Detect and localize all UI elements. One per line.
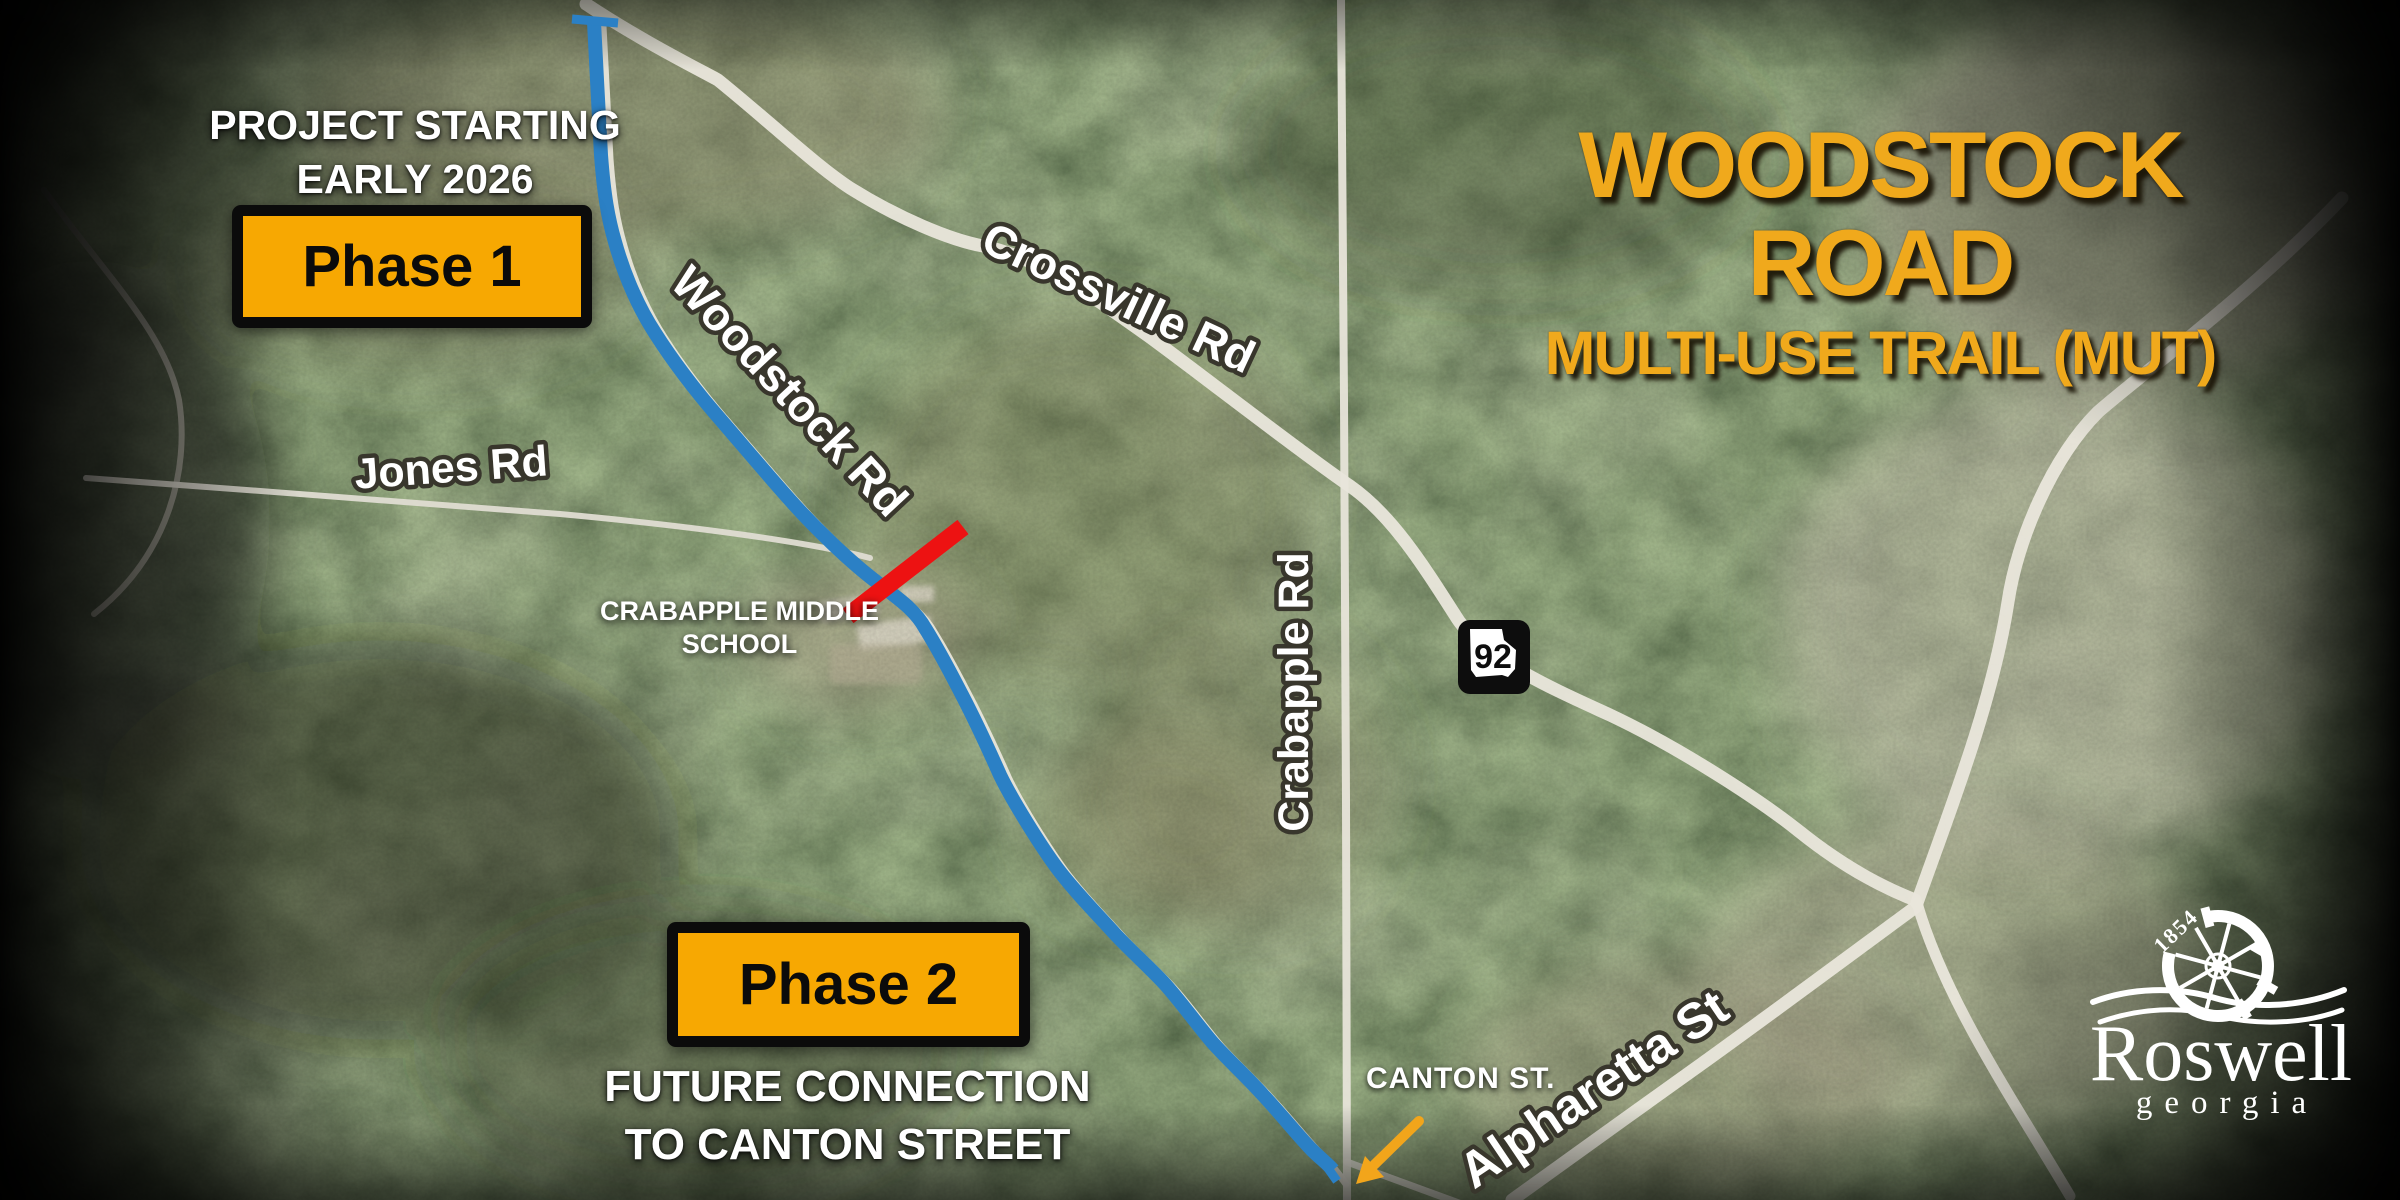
future-connection-note: FUTURE CONNECTION TO CANTON STREET: [575, 1058, 1120, 1174]
canton-street-label: CANTON ST.: [1366, 1062, 1626, 1096]
phase-2-label: Phase 2: [739, 951, 958, 1018]
future-connection-line-2: TO CANTON STREET: [575, 1116, 1120, 1174]
school-label: CRABAPPLE MIDDLE SCHOOL: [597, 595, 882, 661]
phase-2-badge: Phase 2: [667, 922, 1030, 1047]
title-line-2: MULTI-USE TRAIL (MUT): [1495, 320, 2265, 386]
page-title: WOODSTOCK ROAD MULTI-USE TRAIL (MUT): [1495, 116, 2265, 386]
map-canvas: 92 Crossville Rd Woodstock Rd Jones Rd C…: [0, 0, 2400, 1200]
project-start-line-1: PROJECT STARTING: [200, 98, 630, 152]
phase-1-label: Phase 1: [302, 233, 521, 300]
project-start-line-2: EARLY 2026: [200, 152, 630, 206]
highway-92-shield: 92: [1458, 620, 1530, 694]
road-label-crabapple: Crabapple Rd: [1270, 552, 1318, 832]
highway-route-number: 92: [1474, 638, 1512, 676]
school-label-line-1: CRABAPPLE MIDDLE: [597, 595, 882, 628]
trail-start-cap: [572, 19, 618, 23]
project-start-note: PROJECT STARTING EARLY 2026: [200, 98, 630, 206]
logo-state: georgia: [2136, 1085, 2318, 1121]
title-line-1: WOODSTOCK ROAD: [1495, 116, 2265, 312]
phase-1-badge: Phase 1: [232, 205, 592, 328]
waterwheel-hub: [2212, 960, 2225, 973]
school-label-line-2: SCHOOL: [597, 628, 882, 661]
future-connection-line-1: FUTURE CONNECTION: [575, 1058, 1120, 1116]
